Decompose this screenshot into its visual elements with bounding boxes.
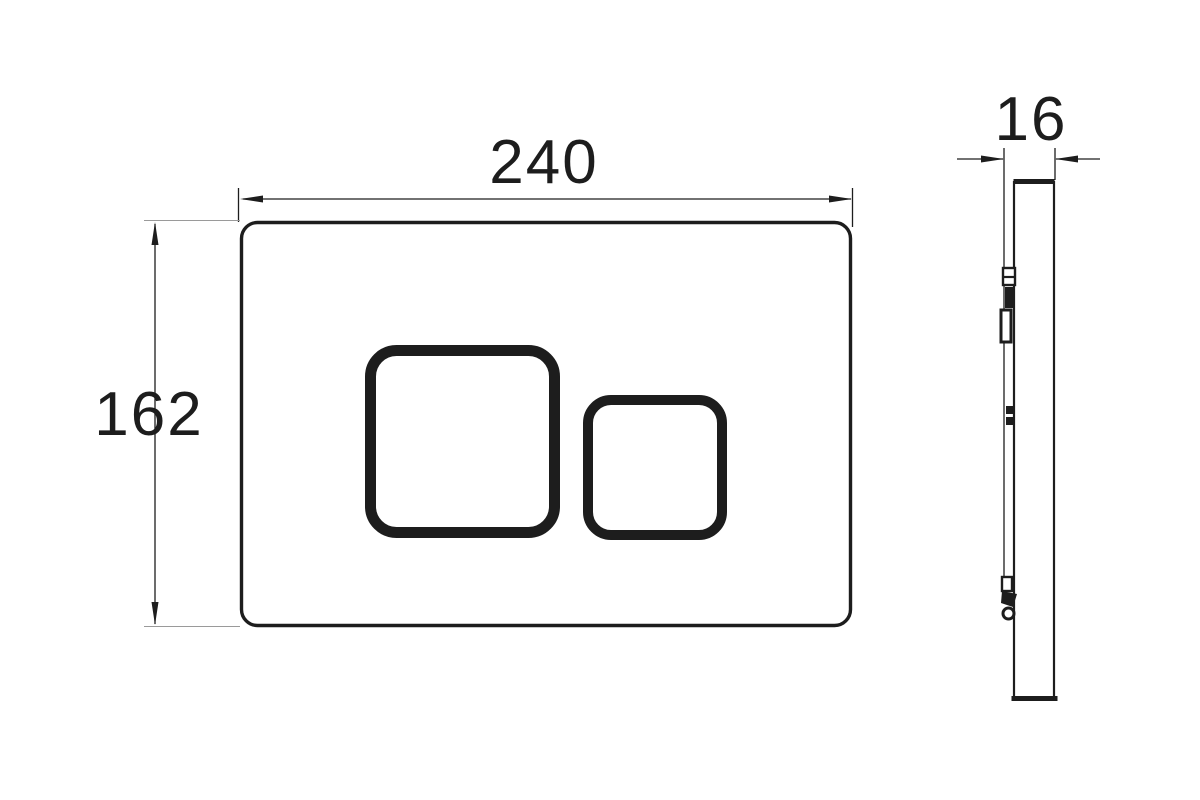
height-dimension-label: 162: [94, 380, 203, 449]
thickness-dimension: 16: [957, 85, 1100, 163]
clip-middle-latch-bottom: [1006, 417, 1015, 425]
width-dimension: 240: [239, 128, 853, 227]
arrow-left-icon: [240, 196, 263, 203]
flush-plate-outline: [242, 223, 851, 626]
drawing-canvas: 240 162: [0, 0, 1200, 800]
width-dimension-label: 240: [489, 128, 598, 197]
clip-upper-latch: [1005, 287, 1015, 308]
side-view: [1001, 148, 1055, 699]
large-flush-button: [371, 351, 555, 533]
small-flush-button: [588, 400, 722, 535]
clip-upper-slider: [1001, 310, 1011, 342]
front-view: [242, 223, 851, 626]
clip-lower-spring-loop: [1003, 608, 1014, 619]
clip-middle-latch-top: [1006, 406, 1015, 414]
arrow-right-icon: [829, 196, 852, 203]
arrow-down-icon: [152, 602, 159, 625]
thickness-dimension-label: 16: [995, 85, 1068, 154]
arrow-inward-right-icon: [981, 156, 1004, 163]
arrow-up-icon: [152, 222, 159, 245]
technical-drawing: 240 162: [0, 0, 1200, 800]
arrow-inward-left-icon: [1055, 156, 1078, 163]
height-dimension: 162: [94, 221, 240, 627]
clip-lower-housing: [1002, 577, 1012, 591]
